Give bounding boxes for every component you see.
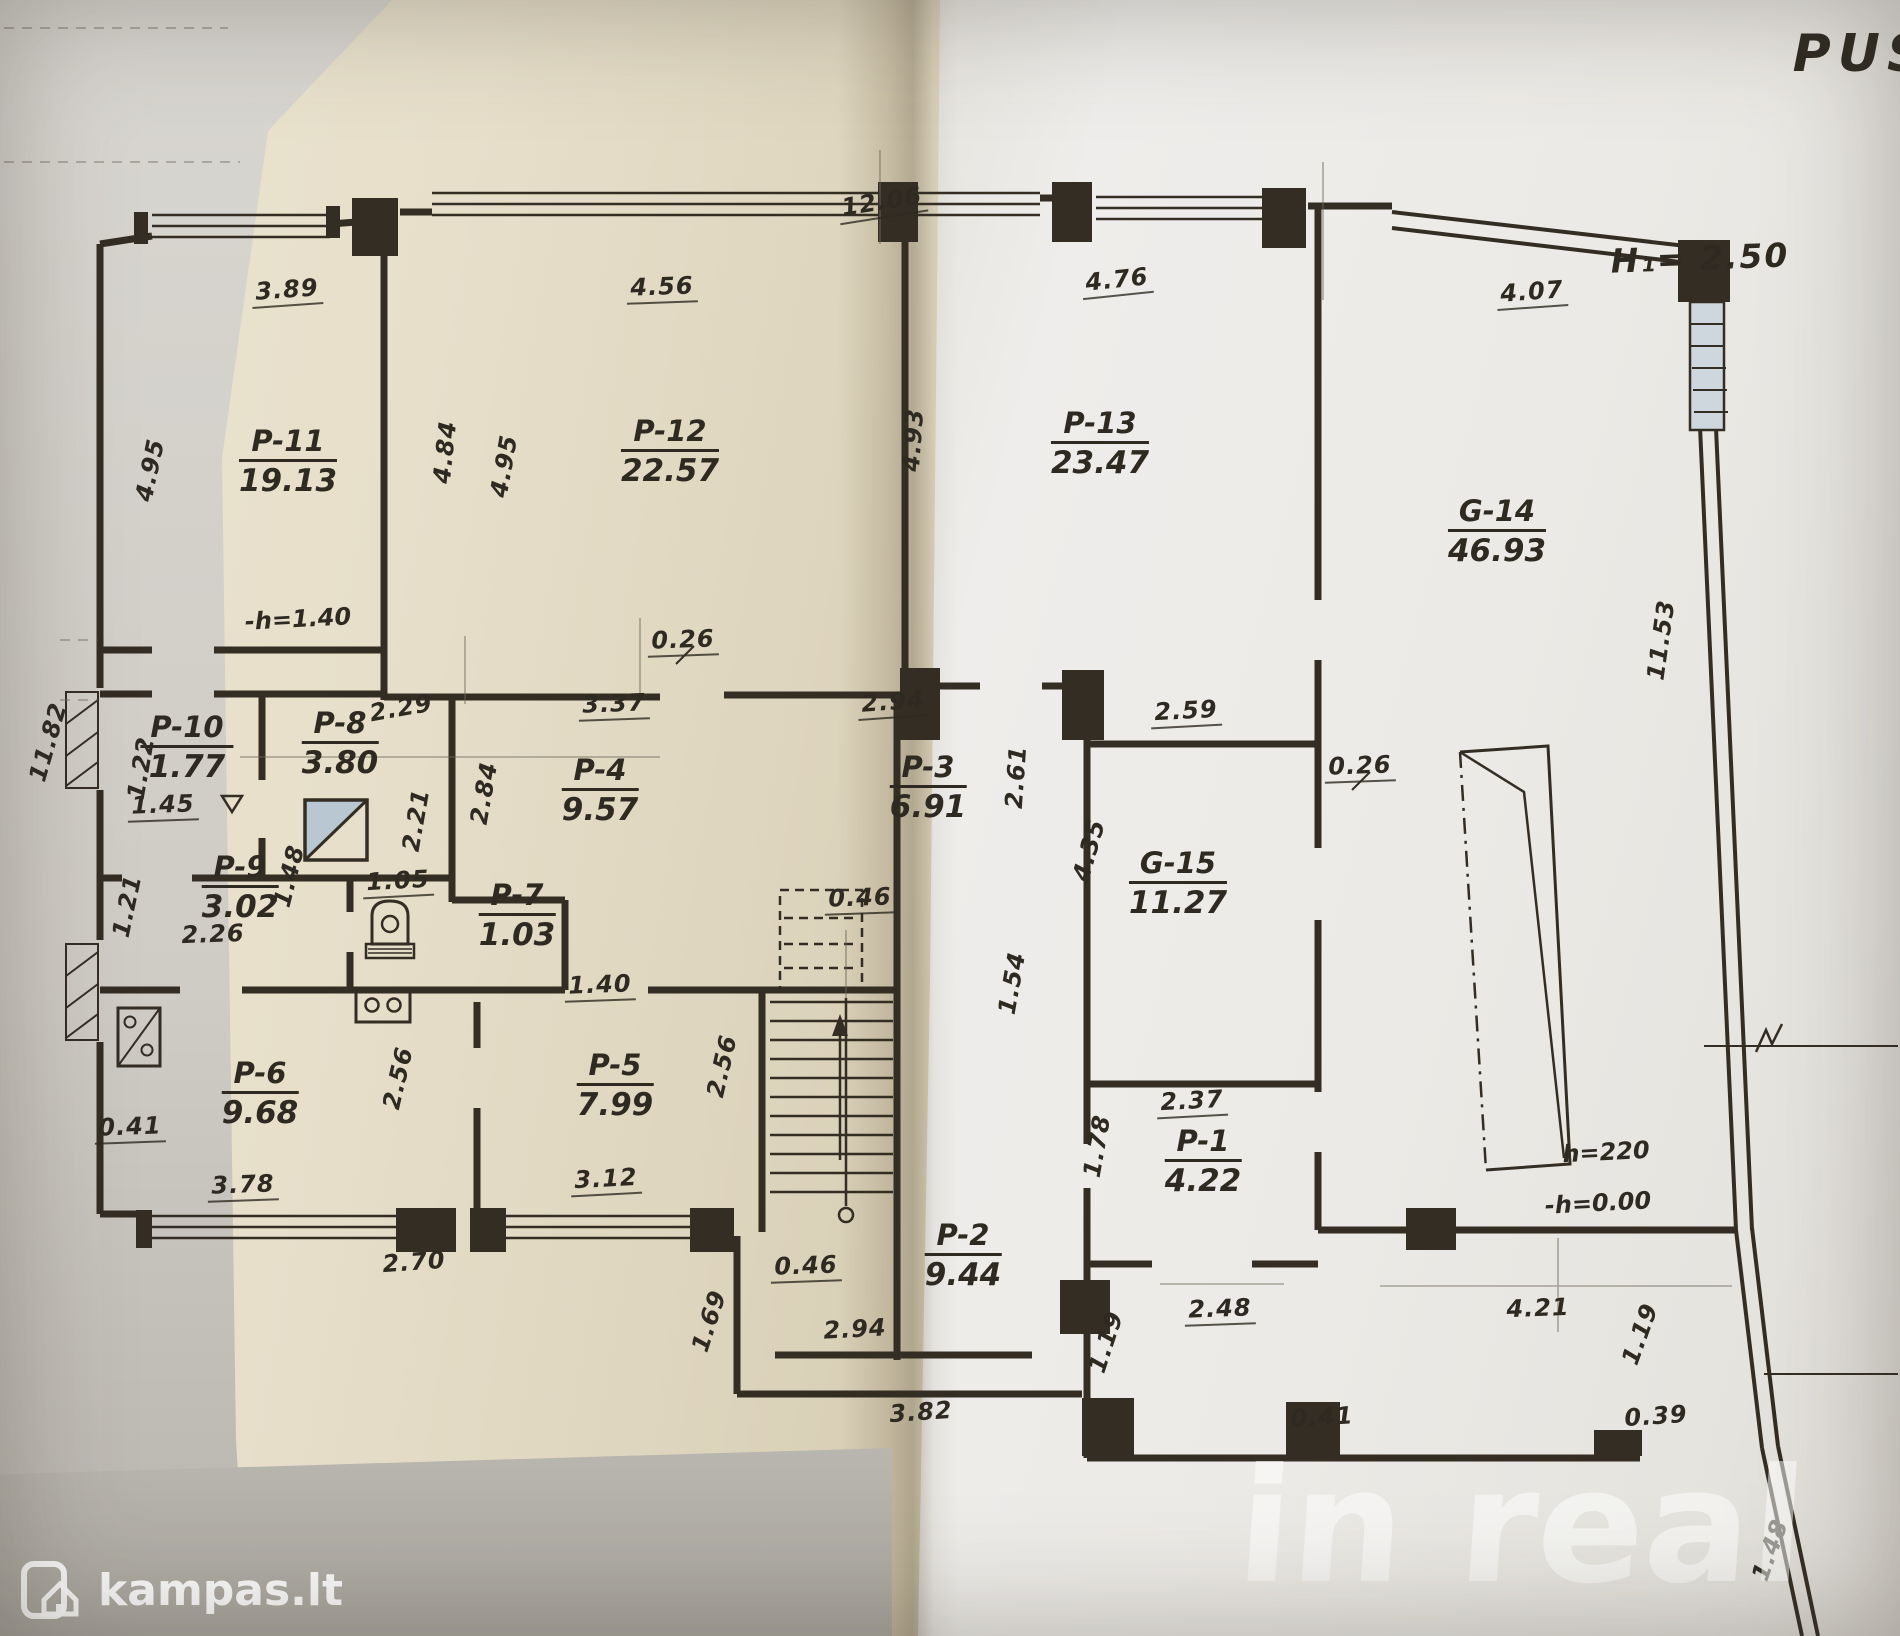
chimney-icon bbox=[305, 800, 367, 860]
room-area: 6.91 bbox=[890, 788, 967, 824]
room-area: 9.57 bbox=[562, 791, 639, 827]
walls bbox=[100, 196, 1736, 1458]
room-label-P-6: P-69.68 bbox=[222, 1058, 299, 1130]
dimension-label: 2.37 bbox=[1156, 1085, 1229, 1120]
dimension-label: 3.89 bbox=[250, 273, 323, 309]
room-label-P-5: P-57.99 bbox=[577, 1050, 654, 1122]
staircase bbox=[770, 890, 893, 1222]
dimension-label: 3.82 bbox=[888, 1396, 953, 1428]
room-area: 3.80 bbox=[302, 744, 379, 780]
room-number: P-11 bbox=[239, 426, 337, 462]
floorplan-photo: P-1119.13P-1222.57P-1323.47G-1446.93P-10… bbox=[0, 0, 1900, 1636]
room-area: 1.03 bbox=[479, 916, 556, 952]
dimension-label: 3.37 bbox=[578, 688, 650, 721]
dimension-label: 4.56 bbox=[626, 271, 698, 304]
annotation-mid: h=220 bbox=[1562, 1136, 1651, 1169]
annotation-mid: -h=0.00 bbox=[1544, 1186, 1652, 1220]
exterior-double-walls bbox=[1392, 212, 1818, 1636]
room-label-P-9: P-93.02 bbox=[202, 852, 279, 924]
room-label-P-13: P-1323.47 bbox=[1051, 408, 1149, 480]
room-area: 46.93 bbox=[1448, 532, 1546, 568]
ramp-outline bbox=[1460, 746, 1570, 1170]
dimension-label: 2.70 bbox=[381, 1246, 446, 1278]
room-area: 7.99 bbox=[577, 1086, 654, 1122]
dimension-label: 4.21 bbox=[1506, 1293, 1570, 1323]
window-hatch bbox=[66, 692, 98, 1040]
room-number: P-3 bbox=[890, 752, 967, 788]
annotation-mid: -h=1.40 bbox=[244, 602, 352, 636]
dimension-label: 0.46 bbox=[770, 1250, 842, 1283]
dimension-label: 2.48 bbox=[1184, 1293, 1256, 1326]
boiler-icon bbox=[118, 1008, 160, 1066]
dimension-label: 0.26 bbox=[1324, 750, 1396, 783]
annotation-big: H₁= 2.50 bbox=[1610, 235, 1790, 280]
dimension-label: 1.40 bbox=[564, 969, 636, 1002]
room-number: G-15 bbox=[1129, 848, 1227, 884]
room-number: P-1 bbox=[1165, 1126, 1242, 1162]
room-label-G-14: G-1446.93 bbox=[1448, 496, 1546, 568]
dimension-label: 1.45 bbox=[127, 789, 199, 822]
window-hatch bbox=[1690, 302, 1728, 430]
room-area: 23.47 bbox=[1051, 444, 1149, 480]
room-number: P-6 bbox=[222, 1058, 299, 1094]
room-label-P-2: P-29.44 bbox=[925, 1220, 1002, 1292]
dimension-label: 2.94 bbox=[856, 685, 929, 721]
room-label-P-7: P-71.03 bbox=[479, 880, 556, 952]
room-label-P-3: P-36.91 bbox=[890, 752, 967, 824]
inreal-watermark: in real bbox=[1232, 1448, 1811, 1606]
room-number: P-4 bbox=[562, 755, 639, 791]
kampas-logo-icon bbox=[20, 1558, 84, 1622]
room-area: 9.68 bbox=[222, 1094, 299, 1130]
dimension-label: 0.26 bbox=[647, 624, 719, 657]
room-label-P-1: P-14.22 bbox=[1165, 1126, 1242, 1198]
dimension-label: 2.94 bbox=[823, 1313, 888, 1344]
room-area: 9.44 bbox=[925, 1256, 1002, 1292]
dimension-label: 2.26 bbox=[181, 919, 245, 949]
dimension-label: 0.39 bbox=[1623, 1400, 1688, 1432]
room-area: 22.57 bbox=[621, 452, 719, 488]
room-number: G-14 bbox=[1448, 496, 1546, 532]
dimension-label: 3.78 bbox=[207, 1169, 279, 1202]
room-label-P-4: P-49.57 bbox=[562, 755, 639, 827]
annotation-title: PUS bbox=[1793, 24, 1900, 84]
kampas-watermark-text: kampas.lt bbox=[98, 1565, 343, 1616]
room-label-P-12: P-1222.57 bbox=[621, 416, 719, 488]
room-area: 19.13 bbox=[239, 462, 337, 498]
vent-triangle-icon bbox=[222, 796, 242, 812]
room-label-P-11: P-1119.13 bbox=[239, 426, 337, 498]
dimension-label: 0.41 bbox=[94, 1111, 166, 1144]
room-number: P-13 bbox=[1051, 408, 1149, 444]
room-label-P-8: P-83.80 bbox=[302, 708, 379, 780]
room-area: 11.27 bbox=[1129, 884, 1227, 920]
kampas-watermark: kampas.lt bbox=[20, 1558, 343, 1622]
dimension-label: 2.59 bbox=[1150, 695, 1223, 730]
room-number: P-7 bbox=[479, 880, 556, 916]
toilet-icon bbox=[366, 901, 414, 958]
room-number: P-5 bbox=[577, 1050, 654, 1086]
dimension-label: 0.46 bbox=[824, 882, 896, 915]
room-number: P-9 bbox=[202, 852, 279, 888]
dimension-label: 4.93 bbox=[897, 407, 929, 472]
room-number: P-8 bbox=[302, 708, 379, 744]
dimension-label: 4.07 bbox=[1495, 275, 1568, 311]
room-label-G-15: G-1511.27 bbox=[1129, 848, 1227, 920]
dimension-label: 0.41 bbox=[1290, 1401, 1355, 1432]
dimension-label: 2.61 bbox=[1000, 744, 1032, 809]
dimension-label: 3.12 bbox=[570, 1163, 643, 1198]
room-number: P-2 bbox=[925, 1220, 1002, 1256]
guide-lines bbox=[4, 28, 1732, 1332]
room-area: 4.22 bbox=[1165, 1162, 1242, 1198]
dimension-label: 1.05 bbox=[362, 865, 435, 900]
room-number: P-12 bbox=[621, 416, 719, 452]
